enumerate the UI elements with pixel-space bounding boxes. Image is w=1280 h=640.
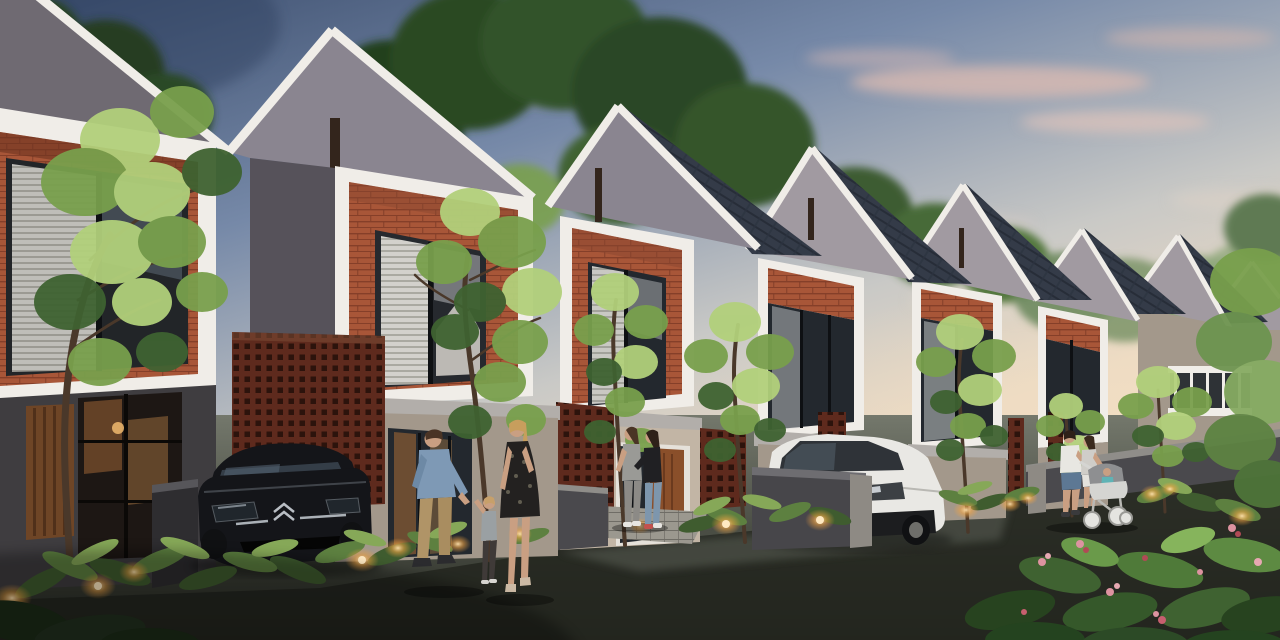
brick-lattice-screen — [1008, 418, 1024, 498]
stroller-wheel — [1120, 512, 1132, 524]
slot-window — [595, 168, 602, 222]
garden-low-wall — [556, 484, 608, 550]
slot-window — [959, 228, 964, 268]
headlight — [326, 498, 360, 514]
interior-lamp — [112, 422, 124, 434]
townhouse-rendering-image — [0, 0, 1280, 640]
slot-window — [808, 198, 814, 240]
stroller-wheel — [1084, 512, 1100, 528]
stroller-toddler — [1103, 468, 1111, 476]
headlight — [212, 502, 258, 522]
